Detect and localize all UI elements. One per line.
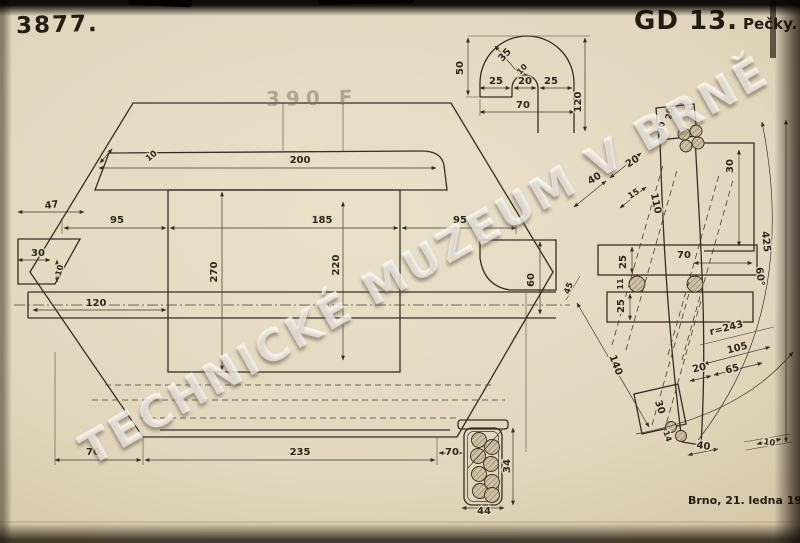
- wire-circles: [471, 433, 500, 503]
- date-note: Brno, 21. ledna 1920.: [688, 494, 800, 507]
- dim-label: 25: [616, 299, 627, 313]
- dim-label: 15: [626, 187, 641, 202]
- dim-label: 220: [331, 255, 342, 276]
- rivet: [692, 137, 704, 149]
- dim-label: 20: [518, 76, 532, 87]
- bar-left-edge: [660, 140, 682, 442]
- dim-label: 30: [652, 399, 667, 416]
- dim-label: 95: [110, 215, 124, 226]
- dim-label: 30: [31, 248, 45, 259]
- dim-label: 120: [86, 298, 107, 309]
- left-tab: [18, 239, 80, 284]
- rivet: [687, 276, 703, 292]
- dim-label: 10: [763, 437, 776, 449]
- dim-label: 270: [209, 262, 220, 283]
- dim-label: 425: [759, 231, 772, 253]
- lower-flat-bar: [607, 292, 753, 322]
- dim-label: 50: [455, 61, 466, 75]
- dim-label: 40: [696, 440, 711, 453]
- main-view: 200 10 47 95 185 95 30 10 270 220 60 120…: [14, 97, 570, 465]
- dim-label: 235: [290, 447, 311, 458]
- faint-stamp: 390 F: [266, 85, 359, 111]
- dim-label: 10: [54, 263, 66, 277]
- wire: [485, 488, 500, 503]
- dim-label: 25: [544, 76, 558, 87]
- dim-label: 45: [562, 281, 575, 296]
- dim-label: 185: [312, 215, 333, 226]
- wire: [484, 457, 499, 472]
- dim-label: 110: [648, 192, 663, 215]
- drawing-number: 3877.: [16, 11, 99, 39]
- dim-label: 30: [725, 159, 736, 173]
- rivet: [629, 276, 645, 292]
- dim-label: 11: [616, 278, 625, 290]
- dim-label: 140: [607, 353, 624, 376]
- dim-label: 70: [516, 100, 530, 111]
- section-view: 34 44: [458, 420, 513, 517]
- dim-label: 34: [502, 459, 513, 473]
- dim-label: 70: [677, 250, 691, 261]
- scanned-technical-drawing: 200 10 47 95 185 95 30 10 270 220 60 120…: [0, 0, 800, 543]
- dim-label: 25: [489, 76, 503, 87]
- rivet: [676, 431, 687, 442]
- paper-crease-shadow: [770, 0, 776, 58]
- dim-label: 200: [290, 155, 311, 166]
- dim-label: 10: [515, 62, 529, 77]
- title-code: GD 13.: [634, 6, 738, 36]
- dim-label: 20: [691, 362, 707, 376]
- hook-view: 50 35 10 25 20 25 70 120: [455, 36, 590, 133]
- dim-label: 25: [618, 255, 629, 269]
- wire: [472, 467, 487, 482]
- dim-label: 60°: [753, 267, 766, 287]
- dim-label: 44: [477, 506, 491, 517]
- dim-label: 47: [44, 199, 59, 212]
- dim-e20: [690, 376, 711, 381]
- dim-label: 10: [144, 149, 160, 164]
- dim-label: 60: [526, 273, 537, 287]
- dim-label: 120: [573, 92, 584, 113]
- swing-arc-60: [636, 352, 793, 434]
- dim-label: 70: [445, 447, 459, 458]
- radius-leader: [566, 276, 792, 450]
- dim-label: 35: [496, 46, 514, 64]
- dim-label: 65: [724, 363, 740, 377]
- dim-label: 105: [726, 341, 749, 357]
